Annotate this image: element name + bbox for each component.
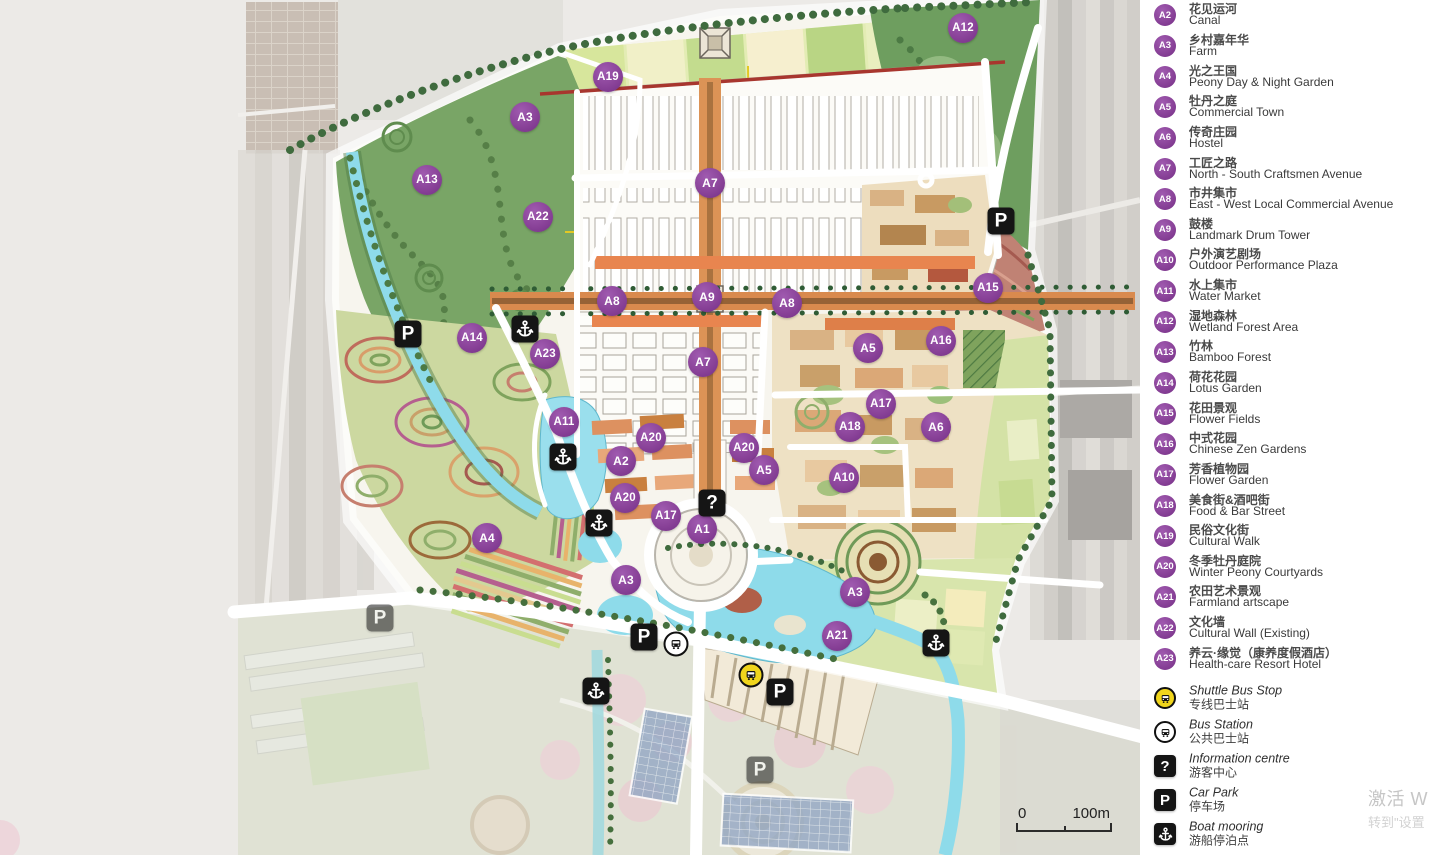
map-marker-a6: A6 — [921, 412, 951, 442]
legend-item-a22: A22文化墙Cultural Wall (Existing) — [1140, 613, 1432, 644]
legend-label: 农田艺术景观Farmland artscape — [1189, 586, 1289, 608]
transport-label-zh: 公共巴士站 — [1189, 732, 1253, 746]
legend-item-a21: A21农田艺术景观Farmland artscape — [1140, 582, 1432, 613]
legend-label: 花见运河Canal — [1189, 4, 1237, 26]
transport-label-en: Car Park — [1189, 787, 1238, 800]
legend-label-en: Flower Garden — [1189, 475, 1268, 486]
legend-label-en: Farmland artscape — [1189, 597, 1289, 608]
legend-item-a3: A3乡村嘉年华Farm — [1140, 31, 1432, 62]
map-car-park-marker: P — [631, 624, 658, 651]
scale-end-label: 100m — [1072, 806, 1110, 821]
legend-badge-a19: A19 — [1154, 525, 1176, 547]
map-boat-mooring-marker — [583, 678, 610, 705]
legend-item-a2: A2花见运河Canal — [1140, 0, 1432, 31]
legend-label-en: Cultural Walk — [1189, 536, 1260, 547]
map-marker-a11: A11 — [549, 407, 579, 437]
legend-badge-a8: A8 — [1154, 188, 1176, 210]
legend-label: 竹林Bamboo Forest — [1189, 341, 1271, 363]
transport-label: Bus Station公共巴士站 — [1189, 719, 1253, 746]
map-boat-mooring-marker — [923, 630, 950, 657]
map-marker-a13: A13 — [412, 165, 442, 195]
map-car-park-marker: P — [747, 757, 774, 784]
map-car-park-marker: P — [367, 605, 394, 632]
legend-label-en: Food & Bar Street — [1189, 506, 1285, 517]
legend-item-a8: A8市井集市East - West Local Commercial Avenu… — [1140, 184, 1432, 215]
legend-label: 花田景观Flower Fields — [1189, 403, 1260, 425]
legend-label: 芳香植物园Flower Garden — [1189, 464, 1268, 486]
map-marker-a20: A20 — [610, 483, 640, 513]
legend-badge-a12: A12 — [1154, 311, 1176, 333]
legend-badge-a23: A23 — [1154, 648, 1176, 670]
scale-start-label: 0 — [1018, 806, 1026, 821]
information-icon: ? — [699, 490, 726, 517]
legend-item-a6: A6传奇庄园Hostel — [1140, 123, 1432, 154]
legend-label-en: Peony Day & Night Garden — [1189, 77, 1334, 88]
legend-item-a14: A14荷花花园Lotus Garden — [1140, 368, 1432, 399]
legend-item-a19: A19民俗文化街Cultural Walk — [1140, 521, 1432, 552]
map-marker-a4: A4 — [472, 523, 502, 553]
legend-badge-a18: A18 — [1154, 495, 1176, 517]
shuttle-bus-icon — [1154, 687, 1176, 709]
transport-legend-information: ?Information centre游客中心 — [1140, 749, 1432, 783]
legend-item-a4: A4光之王国Peony Day & Night Garden — [1140, 61, 1432, 92]
map-marker-a3: A3 — [510, 102, 540, 132]
map-marker-a1: A1 — [687, 514, 717, 544]
legend-label: 荷花花园Lotus Garden — [1189, 372, 1262, 394]
legend-badge-a9: A9 — [1154, 219, 1176, 241]
map-boat-mooring-marker — [512, 316, 539, 343]
information-icon: ? — [1154, 755, 1176, 777]
transport-icon-wrap: P — [1154, 789, 1176, 811]
car-park-icon: P — [767, 679, 794, 706]
legend-label-en: Cultural Wall (Existing) — [1189, 628, 1310, 639]
legend-label: 中式花园Chinese Zen Gardens — [1189, 433, 1306, 455]
transport-legend-shuttle-bus: Shuttle Bus Stop专线巴士站 — [1140, 681, 1432, 715]
map-car-park-marker: P — [988, 208, 1015, 235]
transport-label-zh: 游船停泊点 — [1189, 834, 1263, 848]
legend-label: 水上集市Water Market — [1189, 280, 1261, 302]
map-bus-station-marker — [664, 632, 689, 657]
legend-label-en: Farm — [1189, 46, 1249, 57]
boat-mooring-icon — [923, 630, 950, 657]
legend-label-en: Commercial Town — [1189, 107, 1284, 118]
transport-label: Boat mooring游船停泊点 — [1189, 821, 1263, 848]
map-marker-a22: A22 — [523, 202, 553, 232]
legend-badge-a6: A6 — [1154, 127, 1176, 149]
map-marker-a8: A8 — [772, 288, 802, 318]
legend-label-en: Canal — [1189, 15, 1237, 26]
legend-item-a9: A9鼓楼Landmark Drum Tower — [1140, 214, 1432, 245]
legend-label: 牡丹之庭Commercial Town — [1189, 96, 1284, 118]
legend-label: 传奇庄园Hostel — [1189, 127, 1237, 149]
scale-bar-line — [1016, 823, 1112, 832]
car-park-icon: P — [631, 624, 658, 651]
legend-label-en: Landmark Drum Tower — [1189, 230, 1310, 241]
car-park-icon: P — [988, 208, 1015, 235]
transport-icon-wrap — [1154, 687, 1176, 709]
legend-badge-a3: A3 — [1154, 35, 1176, 57]
legend-badge-a20: A20 — [1154, 556, 1176, 578]
map-marker-a5: A5 — [853, 333, 883, 363]
car-park-icon: P — [367, 605, 394, 632]
legend-badge-a2: A2 — [1154, 4, 1176, 26]
map-marker-a3: A3 — [840, 577, 870, 607]
windows-activation-watermark: 激活 W 转到"设置 — [1368, 789, 1428, 831]
legend-item-a13: A13竹林Bamboo Forest — [1140, 337, 1432, 368]
legend-label: 工匠之路North - South Craftsmen Avenue — [1189, 158, 1362, 180]
map-marker-a18: A18 — [835, 412, 865, 442]
watermark-line2: 转到"设置 — [1368, 815, 1428, 831]
legend-item-a18: A18美食街&酒吧街Food & Bar Street — [1140, 490, 1432, 521]
map-marker-a23: A23 — [530, 339, 560, 369]
transport-label-zh: 停车场 — [1189, 800, 1238, 814]
bus-station-icon — [1154, 721, 1176, 743]
transport-label-en: Shuttle Bus Stop — [1189, 685, 1282, 698]
legend-item-a16: A16中式花园Chinese Zen Gardens — [1140, 429, 1432, 460]
legend-item-a12: A12湿地森林Wetland Forest Area — [1140, 306, 1432, 337]
legend-label: 民俗文化街Cultural Walk — [1189, 525, 1260, 547]
legend-label-en: East - West Local Commercial Avenue — [1189, 199, 1393, 210]
boat-mooring-icon — [583, 678, 610, 705]
legend-label: 文化墙Cultural Wall (Existing) — [1189, 617, 1310, 639]
legend-label: 光之王国Peony Day & Night Garden — [1189, 66, 1334, 88]
legend-label: 湿地森林Wetland Forest Area — [1189, 311, 1298, 333]
legend-label-en: Bamboo Forest — [1189, 352, 1271, 363]
legend-item-a23: A23养云·缘觉（康养度假酒店）Health-care Resort Hotel — [1140, 643, 1432, 674]
map-marker-a9: A9 — [692, 282, 722, 312]
map-marker-a10: A10 — [829, 463, 859, 493]
transport-legend-bus-station: Bus Station公共巴士站 — [1140, 715, 1432, 749]
boat-mooring-icon — [550, 444, 577, 471]
legend-label-en: Hostel — [1189, 138, 1237, 149]
map-information-marker: ? — [699, 490, 726, 517]
legend-badge-a11: A11 — [1154, 280, 1176, 302]
legend-label-en: Winter Peony Courtyards — [1189, 567, 1323, 578]
legend-badge-a16: A16 — [1154, 433, 1176, 455]
map-marker-a7: A7 — [688, 347, 718, 377]
legend-label-en: Water Market — [1189, 291, 1261, 302]
map-boat-mooring-marker — [586, 510, 613, 537]
map-marker-a8: A8 — [597, 286, 627, 316]
legend-badge-a21: A21 — [1154, 586, 1176, 608]
legend-label: 乡村嘉年华Farm — [1189, 35, 1249, 57]
map-marker-a19: A19 — [593, 62, 623, 92]
legend-label: 户外演艺剧场Outdoor Performance Plaza — [1189, 249, 1338, 271]
transport-label: Information centre游客中心 — [1189, 753, 1290, 780]
legend-badge-a5: A5 — [1154, 96, 1176, 118]
legend-label-en: Lotus Garden — [1189, 383, 1262, 394]
legend-label: 养云·缘觉（康养度假酒店）Health-care Resort Hotel — [1189, 648, 1337, 670]
legend-item-a20: A20冬季牡丹庭院Winter Peony Courtyards — [1140, 552, 1432, 583]
legend-badge-a13: A13 — [1154, 341, 1176, 363]
legend-item-list: A2花见运河CanalA3乡村嘉年华FarmA4光之王国Peony Day & … — [1140, 0, 1432, 674]
boat-mooring-icon — [512, 316, 539, 343]
transport-label-zh: 专线巴士站 — [1189, 698, 1282, 712]
car-park-icon: P — [395, 321, 422, 348]
legend-badge-a17: A17 — [1154, 464, 1176, 486]
transport-label-en: Information centre — [1189, 753, 1290, 766]
legend-badge-a7: A7 — [1154, 158, 1176, 180]
legend-item-a10: A10户外演艺剧场Outdoor Performance Plaza — [1140, 245, 1432, 276]
map-marker-a15: A15 — [973, 273, 1003, 303]
legend-label-en: Wetland Forest Area — [1189, 322, 1298, 333]
transport-icon-wrap — [1154, 823, 1176, 845]
legend-label: 市井集市East - West Local Commercial Avenue — [1189, 188, 1393, 210]
legend-item-a5: A5牡丹之庭Commercial Town — [1140, 92, 1432, 123]
legend-label: 鼓楼Landmark Drum Tower — [1189, 219, 1310, 241]
transport-label-en: Boat mooring — [1189, 821, 1263, 834]
legend-badge-a4: A4 — [1154, 66, 1176, 88]
map-car-park-marker: P — [767, 679, 794, 706]
boat-mooring-icon — [586, 510, 613, 537]
legend-item-a17: A17芳香植物园Flower Garden — [1140, 460, 1432, 491]
map-car-park-marker: P — [395, 321, 422, 348]
map-marker-a5: A5 — [749, 455, 779, 485]
legend-label: 美食街&酒吧街Food & Bar Street — [1189, 495, 1285, 517]
legend-item-a11: A11水上集市Water Market — [1140, 276, 1432, 307]
map-marker-a7: A7 — [695, 168, 725, 198]
transport-icon-wrap — [1154, 721, 1176, 743]
legend-badge-a22: A22 — [1154, 617, 1176, 639]
legend-label-en: North - South Craftsmen Avenue — [1189, 169, 1362, 180]
map-boat-mooring-marker — [550, 444, 577, 471]
legend-badge-a15: A15 — [1154, 403, 1176, 425]
map-marker-a14: A14 — [457, 323, 487, 353]
transport-label: Shuttle Bus Stop专线巴士站 — [1189, 685, 1282, 712]
map-scale-bar: 0 100m — [1016, 806, 1112, 832]
map-marker-a2: A2 — [606, 446, 636, 476]
legend-panel: A2花见运河CanalA3乡村嘉年华FarmA4光之王国Peony Day & … — [1140, 0, 1432, 855]
map-marker-a17: A17 — [866, 389, 896, 419]
transport-label: Car Park停车场 — [1189, 787, 1238, 814]
legend-badge-a10: A10 — [1154, 249, 1176, 271]
legend-item-a15: A15花田景观Flower Fields — [1140, 398, 1432, 429]
map-marker-a20: A20 — [636, 423, 666, 453]
car-park-icon: P — [747, 757, 774, 784]
legend-badge-a14: A14 — [1154, 372, 1176, 394]
shuttle-bus-icon — [739, 663, 764, 688]
map-marker-a16: A16 — [926, 326, 956, 356]
legend-item-a7: A7工匠之路North - South Craftsmen Avenue — [1140, 153, 1432, 184]
masterplan-canvas: A12A19A3A13A7A22A15A9A8A8A14A16A5A23A7A1… — [0, 0, 1432, 855]
legend-label-en: Chinese Zen Gardens — [1189, 444, 1306, 455]
map-marker-a21: A21 — [822, 621, 852, 651]
map-marker-a3: A3 — [611, 565, 641, 595]
boat-mooring-icon — [1154, 823, 1176, 845]
car-park-icon: P — [1154, 789, 1176, 811]
map-marker-a17: A17 — [651, 501, 681, 531]
legend-label-en: Flower Fields — [1189, 414, 1260, 425]
map-marker-a12: A12 — [948, 13, 978, 43]
transport-label-zh: 游客中心 — [1189, 766, 1290, 780]
transport-icon-wrap: ? — [1154, 755, 1176, 777]
map-shuttle-bus-marker — [739, 663, 764, 688]
legend-label: 冬季牡丹庭院Winter Peony Courtyards — [1189, 556, 1323, 578]
legend-label-en: Outdoor Performance Plaza — [1189, 260, 1338, 271]
bus-station-icon — [664, 632, 689, 657]
legend-label-en: Health-care Resort Hotel — [1189, 659, 1337, 670]
watermark-line1: 激活 W — [1368, 789, 1428, 809]
transport-label-en: Bus Station — [1189, 719, 1253, 732]
